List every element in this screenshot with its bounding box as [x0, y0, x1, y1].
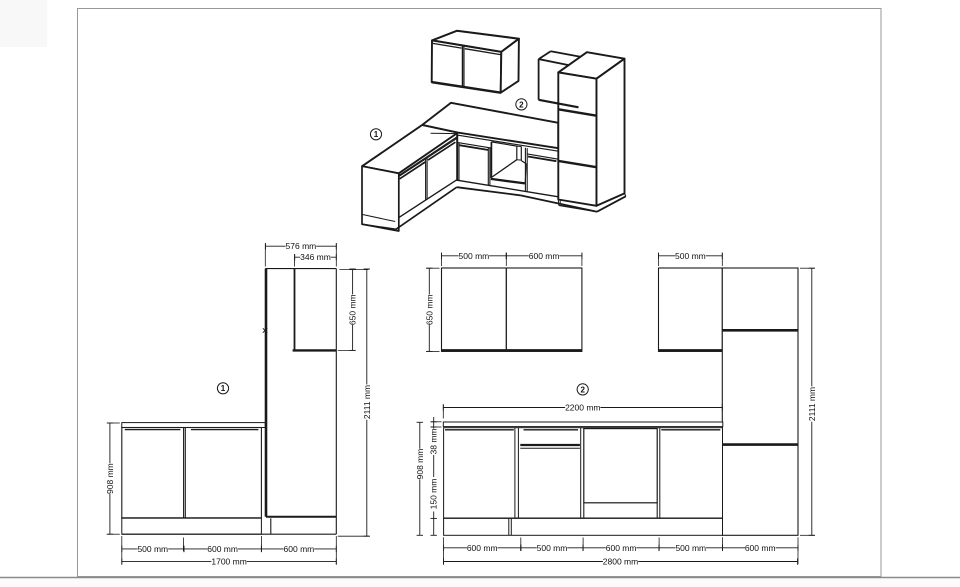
svg-text:1700 mm: 1700 mm — [211, 557, 246, 567]
svg-text:2: 2 — [519, 100, 524, 109]
svg-text:600 mm: 600 mm — [284, 544, 315, 554]
svg-text:600 mm: 600 mm — [606, 543, 637, 553]
svg-text:500 mm: 500 mm — [537, 543, 568, 553]
svg-text:150 mm: 150 mm — [428, 479, 438, 510]
svg-text:1: 1 — [374, 130, 379, 139]
svg-text:650 mm: 650 mm — [348, 294, 358, 325]
svg-text:576 mm: 576 mm — [286, 241, 317, 251]
svg-text:600 mm: 600 mm — [467, 543, 498, 553]
svg-text:2111 mm: 2111 mm — [807, 387, 817, 421]
svg-text:500 mm: 500 mm — [675, 543, 706, 553]
svg-text:500 mm: 500 mm — [675, 251, 706, 261]
svg-text:2: 2 — [580, 385, 585, 394]
svg-text:600 mm: 600 mm — [207, 544, 238, 554]
svg-text:1: 1 — [221, 384, 226, 393]
svg-text:500 mm: 500 mm — [137, 544, 168, 554]
svg-text:2111 mm: 2111 mm — [362, 385, 372, 419]
svg-text:908 mm: 908 mm — [415, 449, 425, 480]
svg-text:500 mm: 500 mm — [459, 251, 490, 261]
svg-text:38 mm: 38 mm — [428, 429, 438, 455]
svg-text:2200 mm: 2200 mm — [565, 403, 600, 413]
svg-text:650 mm: 650 mm — [424, 294, 434, 325]
svg-text:600 mm: 600 mm — [745, 543, 776, 553]
svg-text:908 mm: 908 mm — [105, 463, 115, 494]
svg-text:600 mm: 600 mm — [529, 251, 560, 261]
svg-text:2800 mm: 2800 mm — [603, 557, 638, 567]
svg-text:346 mm: 346 mm — [300, 252, 331, 262]
